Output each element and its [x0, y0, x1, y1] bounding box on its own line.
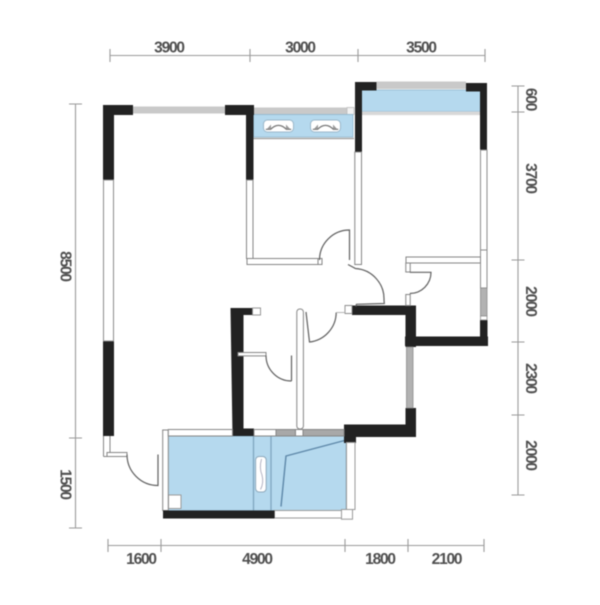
svg-text:1500: 1500: [57, 469, 74, 499]
svg-text:3000: 3000: [285, 40, 315, 57]
svg-text:2000: 2000: [522, 440, 539, 470]
svg-text:8500: 8500: [57, 251, 74, 281]
svg-text:2000: 2000: [522, 286, 539, 316]
svg-text:3900: 3900: [154, 40, 184, 57]
svg-text:2300: 2300: [522, 363, 539, 393]
svg-text:1600: 1600: [126, 551, 156, 568]
svg-text:1800: 1800: [365, 551, 395, 568]
svg-text:3500: 3500: [406, 40, 436, 57]
svg-text:3700: 3700: [522, 163, 539, 193]
svg-text:600: 600: [522, 88, 539, 111]
svg-text:4900: 4900: [242, 551, 272, 568]
svg-text:2100: 2100: [432, 551, 462, 568]
